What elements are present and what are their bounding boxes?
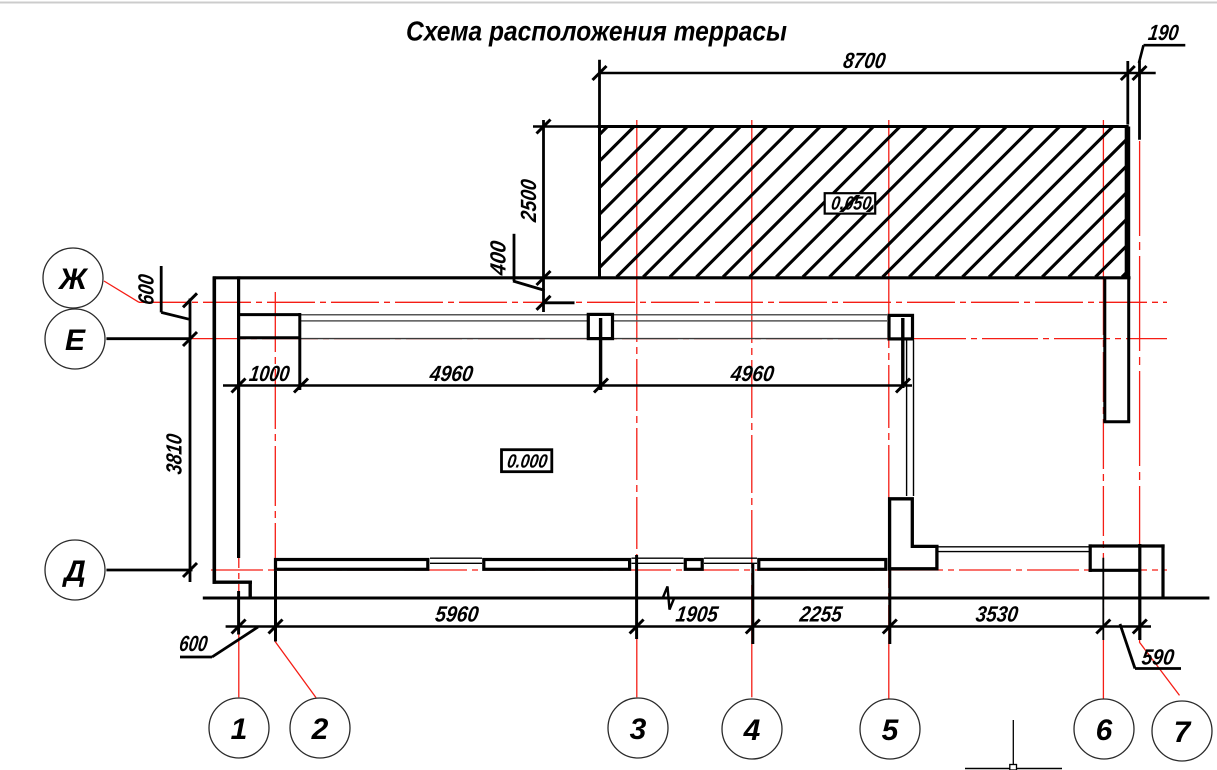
svg-text:Д: Д xyxy=(61,555,86,588)
svg-text:8700: 8700 xyxy=(842,48,888,73)
svg-text:5960: 5960 xyxy=(434,602,481,627)
svg-text:Схема расположения террасы: Схема расположения террасы xyxy=(406,16,787,47)
svg-text:4960: 4960 xyxy=(427,361,475,386)
svg-text:5: 5 xyxy=(882,714,900,747)
svg-text:600: 600 xyxy=(178,631,210,656)
svg-text:3: 3 xyxy=(630,713,647,746)
svg-text:6: 6 xyxy=(1096,714,1113,747)
svg-text:3810: 3810 xyxy=(162,432,187,476)
svg-text:590: 590 xyxy=(1140,645,1176,670)
svg-text:4960: 4960 xyxy=(728,361,776,386)
svg-text:1000: 1000 xyxy=(248,361,292,386)
svg-text:4: 4 xyxy=(743,714,761,747)
svg-text:400: 400 xyxy=(486,239,511,278)
svg-text:190: 190 xyxy=(1147,20,1181,45)
svg-text:2255: 2255 xyxy=(797,602,844,627)
svg-text:600: 600 xyxy=(134,272,159,306)
svg-text:7: 7 xyxy=(1174,716,1192,749)
svg-text:2: 2 xyxy=(311,713,329,746)
svg-text:1905: 1905 xyxy=(674,602,720,627)
svg-text:Ж: Ж xyxy=(57,263,89,296)
svg-text:3530: 3530 xyxy=(974,602,1020,627)
svg-text:0.000: 0.000 xyxy=(506,452,549,473)
svg-text:2500: 2500 xyxy=(516,177,541,224)
svg-text:0.050: 0.050 xyxy=(830,194,873,215)
svg-text:Е: Е xyxy=(65,324,86,357)
svg-text:1: 1 xyxy=(231,713,248,746)
